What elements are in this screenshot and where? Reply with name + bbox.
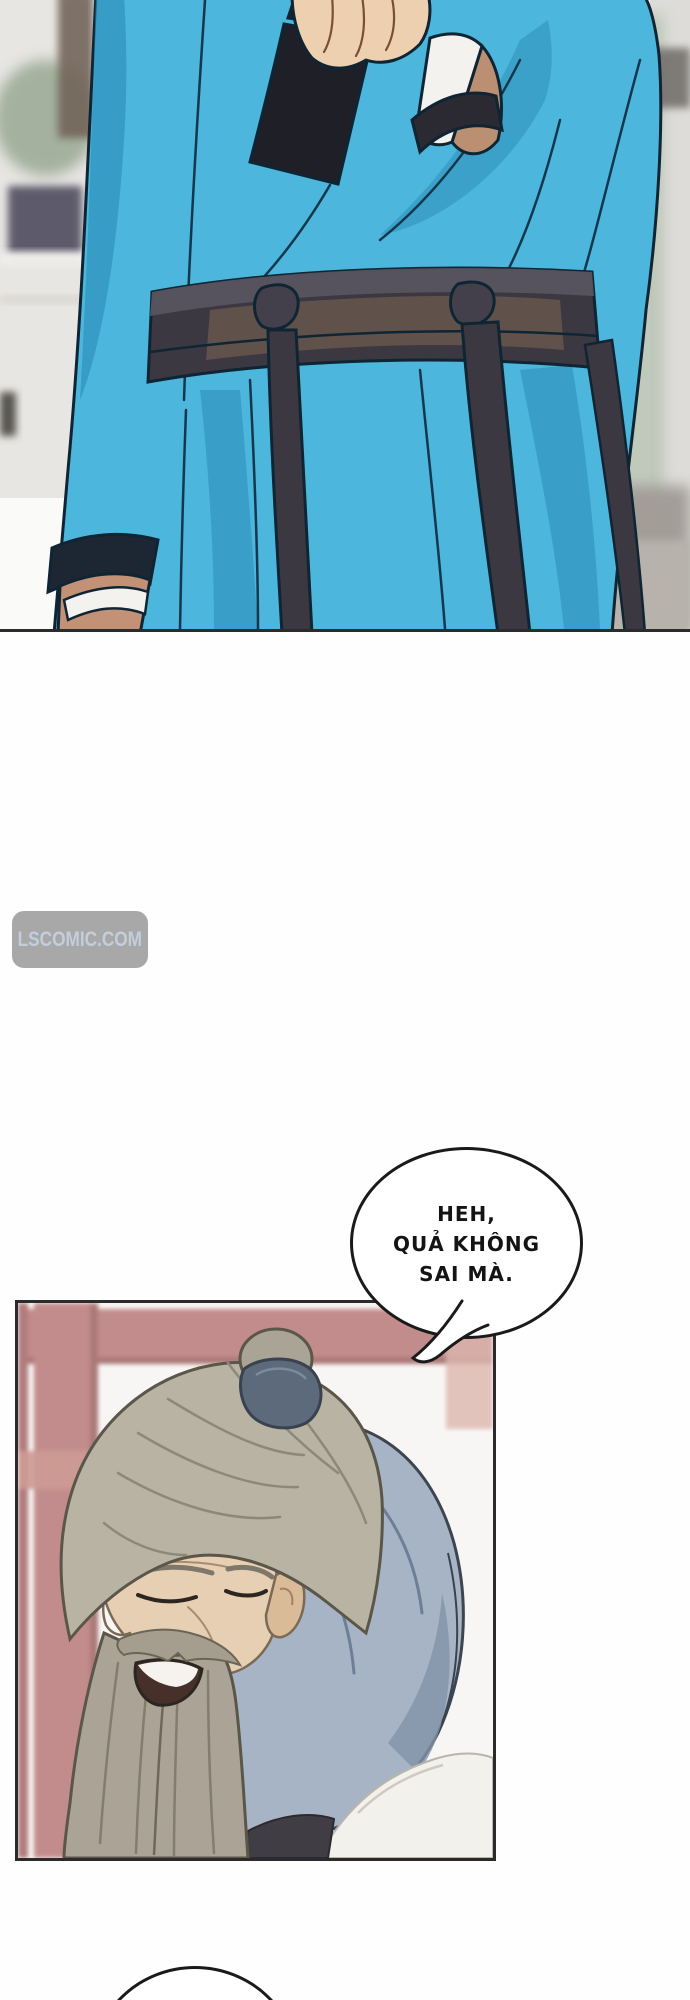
bubble-line-2: QUẢ KHÔNG xyxy=(393,1229,540,1259)
watermark-text: LSCOMIC.COM xyxy=(18,928,142,952)
speech-bubble-tail xyxy=(398,1293,498,1371)
comic-page: LSCOMIC.COM xyxy=(0,0,690,2000)
bubble-line-1: HEH, xyxy=(393,1199,540,1229)
watermark-badge: LSCOMIC.COM xyxy=(12,911,148,968)
panel-bottom xyxy=(15,1300,496,1861)
panel-top-illustration xyxy=(0,0,690,629)
partial-speech-bubble xyxy=(92,1966,298,2000)
panel-top xyxy=(0,0,690,632)
speech-bubble-text: HEH, QUẢ KHÔNG SAI MÀ. xyxy=(393,1197,540,1289)
panel-bottom-illustration xyxy=(18,1303,493,1858)
bubble-line-3: SAI MÀ. xyxy=(393,1259,540,1289)
